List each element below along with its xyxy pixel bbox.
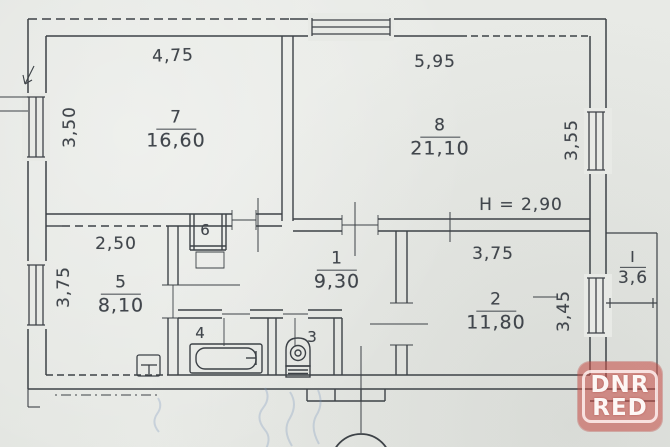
room7-number: 7	[156, 110, 196, 130]
room1-area: 9,30	[314, 271, 360, 294]
room8-number: 8	[420, 118, 460, 138]
dim-room2-width: 3,75	[472, 244, 514, 264]
bathtub-icon	[190, 344, 262, 373]
interior-walls	[46, 36, 590, 401]
room7-label: 7 16,60	[146, 110, 205, 153]
dim-room2-height: 3,45	[554, 290, 574, 332]
floor-plan-scan: 4,75 3,50 5,95 3,55 H = 2,90 2,50 3,75 3…	[0, 0, 670, 447]
sink-icon	[137, 355, 160, 376]
room5-area: 8,10	[98, 295, 144, 318]
room2-number: 2	[476, 292, 516, 312]
balcony-number: I	[620, 250, 645, 268]
room1-label: 1 9,30	[314, 251, 360, 294]
dim-room8-width: 5,95	[414, 52, 456, 72]
watermark-line2: RED	[590, 397, 649, 420]
ceiling-height-note: H = 2,90	[479, 195, 563, 215]
room3-number: 3	[307, 328, 317, 346]
balcony-label: I 3,6	[618, 250, 648, 288]
room8-area: 21,10	[410, 138, 469, 161]
room4-number: 4	[195, 324, 205, 342]
stamp-circle	[331, 434, 391, 447]
watermark-line1: DNR	[590, 374, 649, 397]
room2-label: 2 11,80	[466, 292, 525, 335]
dnr-red-watermark: DNR RED	[578, 362, 662, 431]
room2-area: 11,80	[466, 312, 525, 335]
floor-plan-drawing	[0, 0, 670, 447]
room5-label: 5 8,10	[98, 275, 144, 318]
room7-area: 16,60	[146, 130, 205, 153]
dim-room5-height: 3,75	[54, 266, 74, 308]
dim-room7-width: 4,75	[152, 45, 195, 66]
room8-label: 8 21,10	[410, 118, 469, 161]
dim-room5-width: 2,50	[95, 234, 137, 254]
pencil-marks	[154, 388, 320, 447]
dim-room8-height: 3,55	[562, 119, 582, 161]
closet6-number: 6	[200, 221, 210, 239]
balcony-area: 3,6	[618, 268, 648, 289]
room5-number: 5	[101, 275, 141, 295]
dnr-red-watermark-frame: DNR RED	[582, 370, 657, 423]
room1-number: 1	[317, 251, 357, 271]
dim-room7-height: 3,50	[60, 106, 80, 148]
